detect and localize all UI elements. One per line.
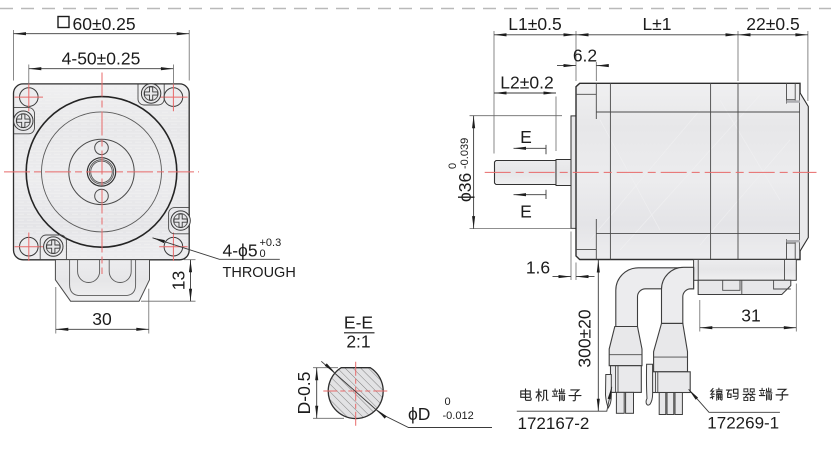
svg-text:D-0.5: D-0.5 (294, 372, 314, 415)
svg-text:13: 13 (169, 271, 189, 290)
svg-text:1.6: 1.6 (526, 258, 550, 278)
svg-text:60±0.25: 60±0.25 (73, 14, 136, 34)
svg-text:172269-1: 172269-1 (707, 413, 779, 432)
svg-text:L1±0.5: L1±0.5 (508, 14, 561, 34)
svg-text:E: E (520, 127, 532, 147)
svg-text:6.2: 6.2 (573, 46, 597, 66)
svg-text:4-50±0.25: 4-50±0.25 (62, 49, 141, 69)
svg-text:-0.012: -0.012 (443, 410, 474, 422)
svg-text:300±20: 300±20 (575, 309, 595, 368)
svg-text:-0.039: -0.039 (459, 138, 471, 169)
svg-text:22±0.5: 22±0.5 (746, 14, 799, 34)
svg-text:ϕ36: ϕ36 (455, 173, 475, 202)
svg-text:0: 0 (447, 163, 459, 169)
svg-text:E-E: E-E (344, 313, 373, 333)
svg-text:0: 0 (445, 396, 451, 408)
svg-text:30: 30 (92, 309, 112, 329)
svg-text:0: 0 (260, 248, 266, 260)
svg-text:4-ϕ5: 4-ϕ5 (223, 241, 258, 261)
svg-text:ϕD: ϕD (408, 404, 430, 424)
svg-text:31: 31 (741, 306, 760, 326)
svg-text:E: E (520, 202, 532, 222)
svg-text:2:1: 2:1 (346, 332, 370, 352)
svg-text:172167-2: 172167-2 (518, 414, 590, 433)
svg-text:L±1: L±1 (642, 14, 671, 34)
svg-text:L2±0.2: L2±0.2 (500, 73, 553, 93)
svg-text:THROUGH: THROUGH (223, 265, 296, 281)
